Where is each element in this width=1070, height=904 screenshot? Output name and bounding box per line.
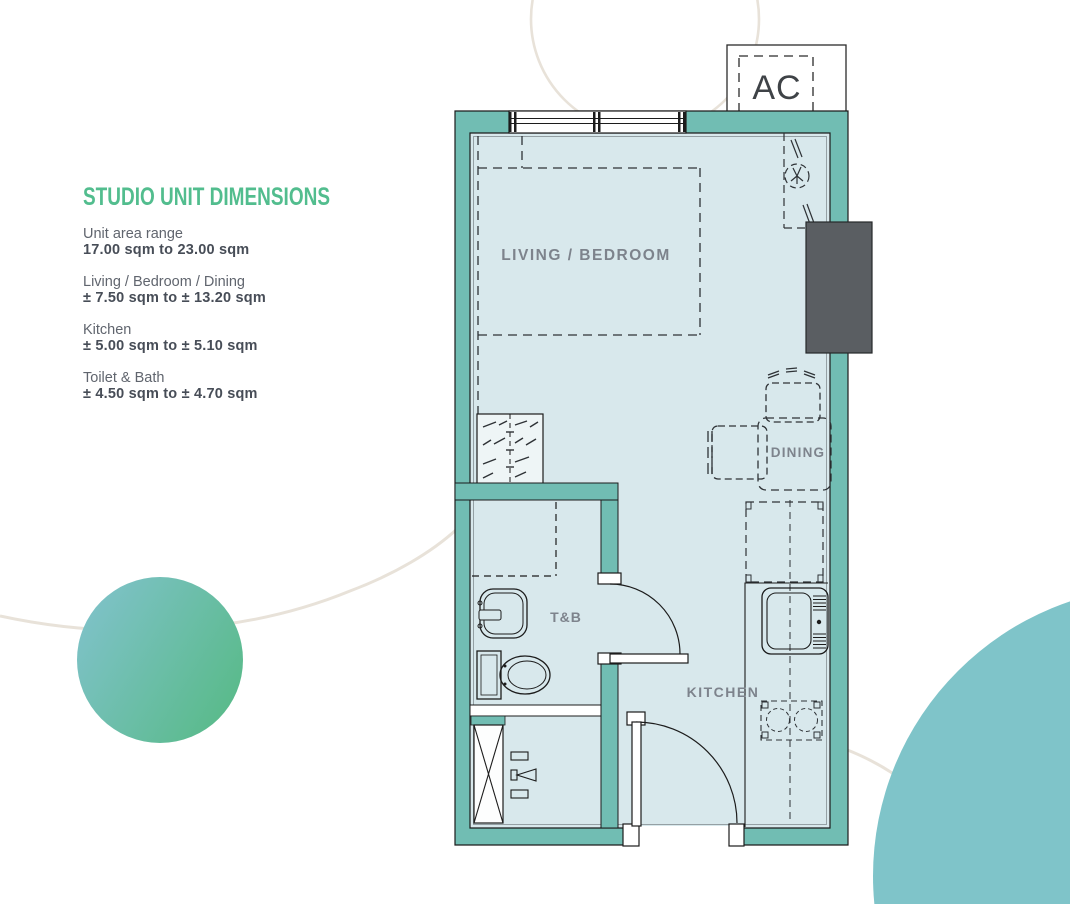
spec-living-bedroom-dining: Living / Bedroom / Dining ± 7.50 sqm to …: [83, 274, 413, 307]
spec-label: Unit area range: [83, 226, 413, 242]
kitchen-label: KITCHEN: [687, 684, 760, 700]
closet: [477, 414, 543, 484]
floor-plan: AC: [455, 45, 872, 847]
window: [509, 111, 686, 133]
shaft-box: [806, 222, 872, 353]
dining-label: DINING: [771, 445, 825, 460]
living-bedroom-label: LIVING / BEDROOM: [501, 247, 671, 264]
spec-kitchen: Kitchen ± 5.00 sqm to ± 5.10 sqm: [83, 322, 413, 355]
deco-gradient-circle: [77, 577, 243, 743]
deco-teal-circle: [873, 586, 1070, 904]
panel-title: STUDIO UNIT DIMENSIONS: [83, 183, 334, 212]
spec-label: Living / Bedroom / Dining: [83, 274, 413, 290]
spec-unit-area: Unit area range 17.00 sqm to 23.00 sqm: [83, 226, 413, 259]
tb-label: T&B: [550, 609, 582, 625]
ac-label: AC: [752, 69, 801, 107]
spec-label: Kitchen: [83, 322, 413, 338]
deco-ring-bottom-right: [845, 749, 898, 777]
page: AC: [0, 0, 1070, 904]
dimensions-panel: STUDIO UNIT DIMENSIONS Unit area range 1…: [83, 183, 413, 418]
spec-toilet-bath: Toilet & Bath ± 4.50 sqm to ± 4.70 sqm: [83, 370, 413, 403]
spec-value: ± 5.00 sqm to ± 5.10 sqm: [83, 338, 413, 355]
spec-value: ± 4.50 sqm to ± 4.70 sqm: [83, 386, 413, 403]
spec-label: Toilet & Bath: [83, 370, 413, 386]
studio-floorplan: AC: [0, 0, 1070, 904]
spec-value: ± 7.50 sqm to ± 13.20 sqm: [83, 290, 413, 307]
spec-value: 17.00 sqm to 23.00 sqm: [83, 242, 413, 259]
shaft-x-box: [474, 725, 503, 823]
